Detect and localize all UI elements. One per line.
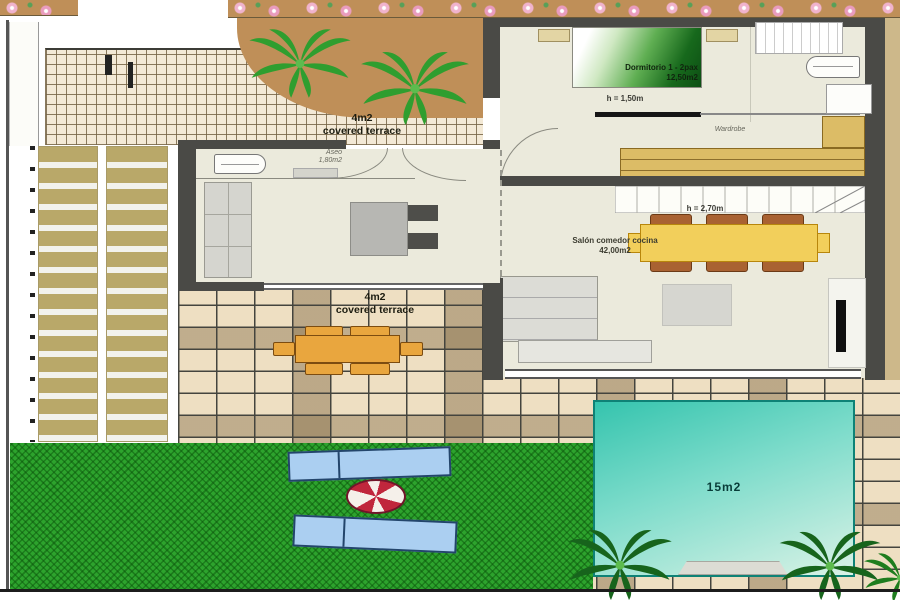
lower-terrace-name-label: covered terrace bbox=[295, 304, 455, 317]
tv-screen bbox=[836, 300, 846, 352]
outdoor-chair bbox=[350, 363, 390, 375]
tv-unit bbox=[828, 278, 866, 368]
lower-terrace-area-label: 4m2 bbox=[295, 291, 455, 304]
wardrobe-side-unit bbox=[822, 116, 865, 148]
bedroom-area-label: 12,50m2 bbox=[625, 73, 698, 83]
wall bbox=[178, 282, 264, 291]
outside-strip bbox=[885, 18, 900, 380]
living-name-label: Salón comedor cocina bbox=[540, 236, 690, 246]
table-extension bbox=[816, 233, 830, 253]
wall-corner-column bbox=[483, 278, 503, 380]
sliding-door-sill bbox=[264, 283, 483, 290]
palm-tree-icon bbox=[245, 25, 355, 100]
side-path bbox=[9, 22, 39, 146]
wall bbox=[483, 18, 500, 98]
rug bbox=[662, 284, 732, 326]
outdoor-chair bbox=[400, 342, 423, 356]
nightstand bbox=[706, 29, 738, 42]
bedroom-name-label: Dormitorio 1 - 2pax bbox=[625, 63, 698, 73]
terrace-boundary-dashed bbox=[500, 150, 502, 286]
beach-ball bbox=[346, 479, 406, 514]
bedroom-height-note: h = 1,50m bbox=[575, 94, 675, 103]
nightstand bbox=[538, 29, 570, 42]
wall bbox=[178, 140, 346, 149]
flower-bed bbox=[228, 0, 900, 18]
low-wall bbox=[595, 112, 701, 117]
partition-line bbox=[196, 178, 415, 179]
partition-line bbox=[750, 27, 751, 122]
flower-bed bbox=[0, 0, 78, 16]
pool-area-label: 15m2 bbox=[707, 480, 742, 494]
basin-line bbox=[813, 66, 853, 67]
wall-stub bbox=[105, 55, 112, 75]
upper-terrace-name-label: covered terrace bbox=[282, 125, 442, 138]
wall bbox=[483, 176, 865, 186]
pergola-posts bbox=[30, 146, 35, 442]
stairs-upper bbox=[755, 22, 843, 54]
washbasin bbox=[214, 154, 266, 174]
wall-stub bbox=[128, 62, 133, 88]
outdoor-table bbox=[295, 335, 400, 363]
sun-lounger bbox=[288, 446, 452, 482]
lounger-fold-line bbox=[342, 519, 345, 547]
island-stool bbox=[408, 205, 438, 221]
upper-terrace-area-label: 4m2 bbox=[282, 112, 442, 125]
wall bbox=[865, 18, 885, 380]
washbasin bbox=[806, 56, 860, 78]
floor-plan: 15m2 Dormitorio 1 - 2pax 12,50m2 h = 1,5… bbox=[0, 0, 900, 600]
living-area-label: 42,00m2 bbox=[540, 246, 690, 256]
sofa-chaise bbox=[518, 340, 652, 363]
lounger-fold-line bbox=[337, 452, 340, 478]
island-stool bbox=[408, 233, 438, 249]
kitchen-counter bbox=[204, 182, 252, 278]
living-height-note: h = 2,70m bbox=[645, 204, 765, 213]
outdoor-chair bbox=[305, 363, 343, 375]
outdoor-chair bbox=[273, 342, 295, 356]
shower-tray bbox=[826, 84, 872, 114]
sliding-door-sill bbox=[505, 369, 861, 379]
kitchen-island bbox=[350, 202, 408, 256]
bed: Dormitorio 1 - 2pax 12,50m2 bbox=[572, 27, 702, 88]
sofa bbox=[500, 276, 598, 342]
palm-tree-icon bbox=[845, 552, 900, 600]
wardrobe-label: Wardrobe bbox=[690, 126, 770, 134]
basin-line bbox=[221, 164, 259, 165]
pergola-slats bbox=[38, 146, 98, 442]
pergola-slats bbox=[106, 146, 168, 442]
wall bbox=[178, 140, 196, 290]
boundary-line bbox=[0, 589, 900, 592]
